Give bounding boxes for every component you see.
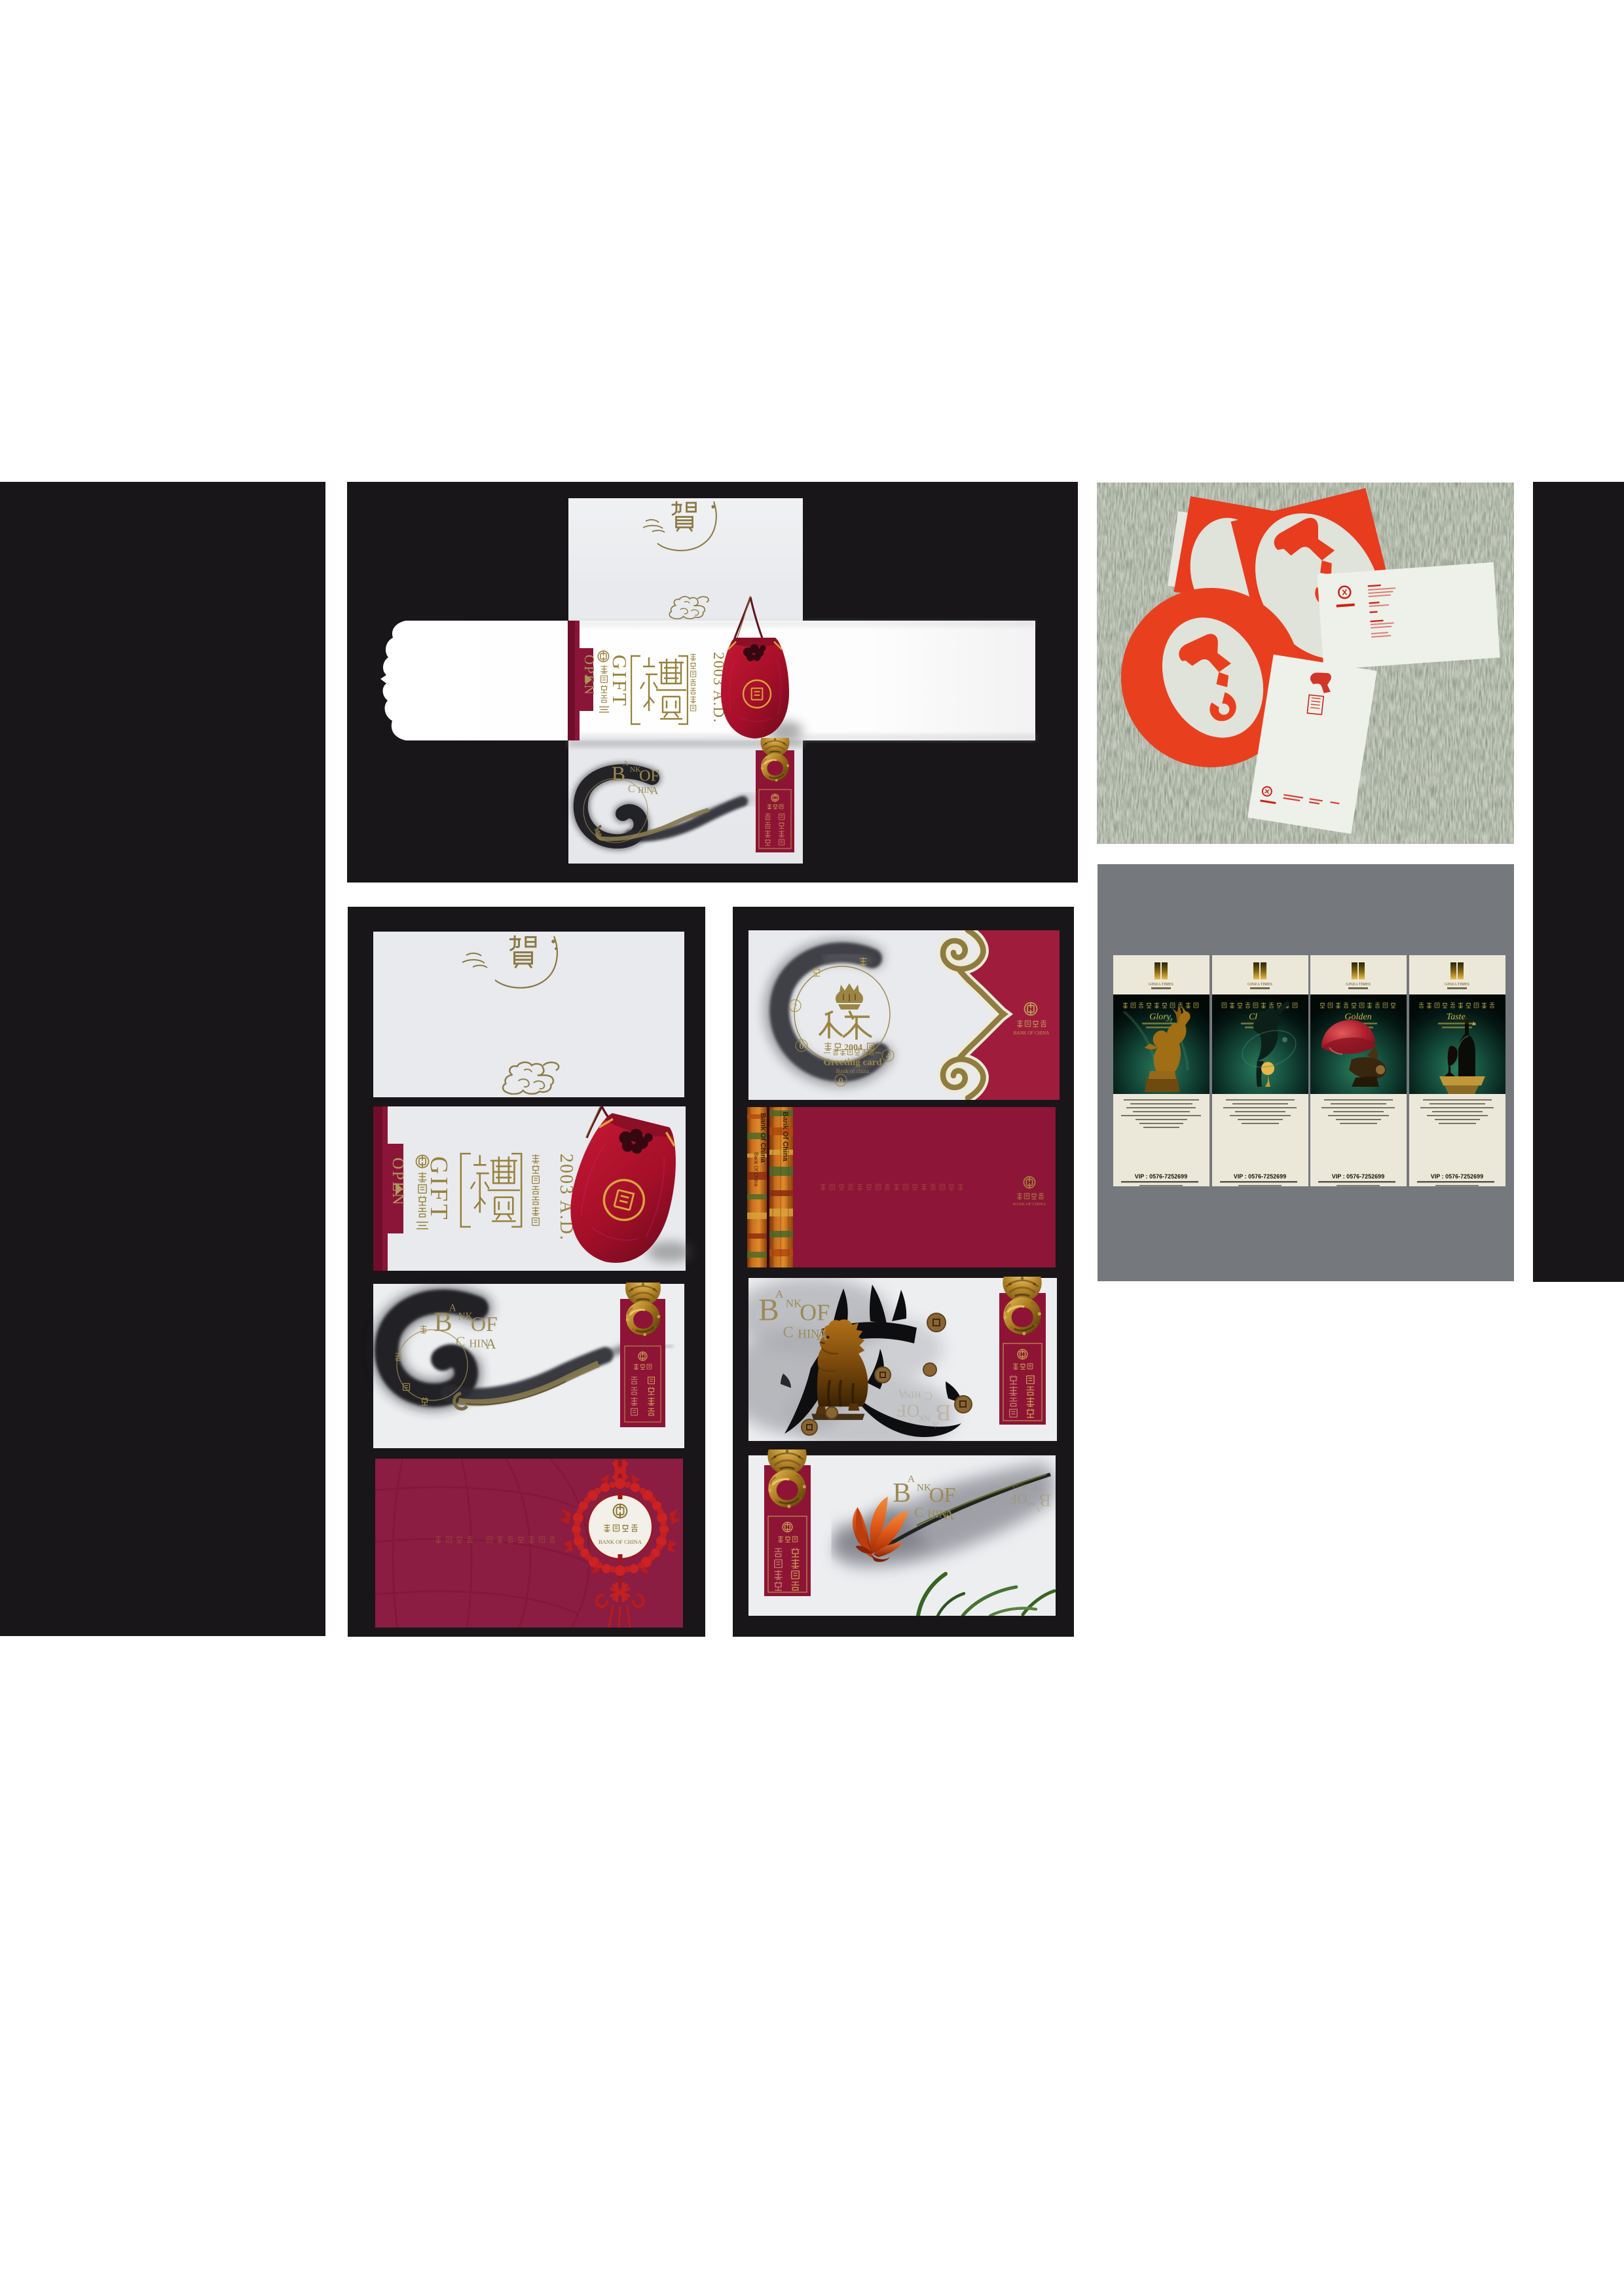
svg-text:GINZA TIMES: GINZA TIMES bbox=[1445, 983, 1469, 987]
svg-text:GINZA TIMES: GINZA TIMES bbox=[1247, 983, 1272, 987]
svg-text:GIFT: GIFT bbox=[425, 1156, 452, 1222]
svg-text:VIP : 0576-7252699: VIP : 0576-7252699 bbox=[1234, 1173, 1286, 1180]
svg-text:0: 0 bbox=[839, 1076, 843, 1085]
svg-text:4: 4 bbox=[886, 1051, 891, 1061]
svg-text:OPEN: OPEN bbox=[581, 655, 597, 696]
svg-text:VIP : 0576-7252699: VIP : 0576-7252699 bbox=[1431, 1173, 1483, 1180]
svg-text:BANK OF CHINA: BANK OF CHINA bbox=[1014, 1030, 1049, 1036]
svg-text:OPEN: OPEN bbox=[389, 1157, 407, 1207]
svg-text:Bank Of China: Bank Of China bbox=[753, 1152, 759, 1187]
svg-text:0: 0 bbox=[800, 1041, 804, 1051]
svg-text:2004: 2004 bbox=[844, 1043, 862, 1053]
svg-text:Bank Of China: Bank Of China bbox=[759, 1113, 767, 1163]
svg-text:VIP : 0576-7252699: VIP : 0576-7252699 bbox=[1332, 1173, 1384, 1180]
svg-text:Taste,: Taste, bbox=[1447, 1012, 1468, 1022]
svg-text:Bank of china: Bank of china bbox=[836, 1068, 869, 1074]
svg-text:BANK OF CHINA: BANK OF CHINA bbox=[599, 1539, 642, 1545]
svg-text:BANK OF CHINA: BANK OF CHINA bbox=[1013, 1202, 1046, 1207]
svg-text:2: 2 bbox=[793, 1001, 798, 1011]
svg-text:Greeting card: Greeting card bbox=[823, 1057, 882, 1068]
svg-text:Bank Of China: Bank Of China bbox=[781, 1112, 789, 1162]
svg-text:GIFT: GIFT bbox=[608, 655, 631, 708]
svg-text:GINZA TIMES: GINZA TIMES bbox=[1346, 983, 1371, 987]
svg-text:VIP : 0576-7252699: VIP : 0576-7252699 bbox=[1135, 1173, 1187, 1180]
svg-text:GINZA TIMES: GINZA TIMES bbox=[1149, 983, 1173, 987]
